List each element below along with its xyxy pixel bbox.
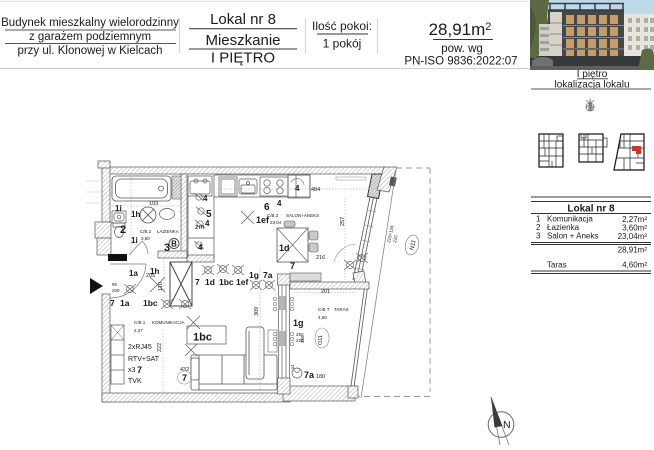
- svg-text:1i: 1i: [115, 204, 122, 213]
- svg-text:C/B.2: C/B.2: [140, 229, 152, 234]
- svg-text:3,60: 3,60: [141, 236, 150, 241]
- svg-text:7: 7: [110, 298, 115, 308]
- svg-text:200: 200: [112, 288, 120, 293]
- svg-text:255: 255: [300, 335, 305, 343]
- svg-text:SALON+ANEKS: SALON+ANEKS: [286, 213, 319, 218]
- svg-text:I piętro: I piętro: [577, 69, 608, 80]
- svg-text:2,27: 2,27: [134, 328, 143, 333]
- svg-text:180: 180: [316, 374, 325, 380]
- svg-text:7: 7: [195, 277, 200, 287]
- svg-text:z garażem podziemnym: z garażem podziemnym: [29, 31, 151, 43]
- svg-text:23,04: 23,04: [270, 220, 282, 225]
- svg-text:3: 3: [164, 242, 170, 254]
- svg-text:1h: 1h: [150, 267, 159, 276]
- svg-text:x3: x3: [128, 367, 136, 374]
- svg-text:O11: O11: [318, 335, 324, 345]
- svg-text:4,60m²: 4,60m²: [622, 261, 647, 270]
- svg-text:222: 222: [157, 343, 163, 352]
- svg-text:110: 110: [158, 282, 164, 291]
- svg-text:2: 2: [120, 224, 126, 236]
- svg-text:KOMUNIKACJA: KOMUNIKACJA: [152, 320, 185, 325]
- svg-text:Budynek mieszkalny wielorodzin: Budynek mieszkalny wielorodzinny: [1, 17, 179, 29]
- svg-text:PN-ISO 9836:2022:07: PN-ISO 9836:2022:07: [404, 56, 517, 68]
- svg-text:484: 484: [311, 187, 320, 193]
- svg-text:4: 4: [198, 243, 203, 252]
- svg-text:TVK: TVK: [128, 378, 142, 385]
- svg-text:7: 7: [137, 365, 142, 375]
- svg-text:1bc: 1bc: [143, 298, 158, 308]
- svg-text:90: 90: [112, 282, 118, 287]
- svg-text:1bc: 1bc: [219, 277, 234, 287]
- svg-text:2xRJ45: 2xRJ45: [128, 344, 152, 351]
- svg-text:ŁAZIENKA: ŁAZIENKA: [157, 229, 179, 234]
- svg-text:4: 4: [203, 194, 208, 203]
- svg-text:1d: 1d: [205, 277, 215, 287]
- svg-text:28,91m²: 28,91m²: [618, 246, 648, 255]
- svg-text:4: 4: [295, 184, 300, 193]
- svg-text:Taras: Taras: [547, 261, 567, 270]
- svg-text:TARAS: TARAS: [334, 307, 349, 312]
- svg-text:Lokal nr 8: Lokal nr 8: [210, 11, 276, 28]
- svg-text:1 pokój: 1 pokój: [323, 37, 362, 51]
- svg-text:1g: 1g: [293, 318, 304, 328]
- svg-text:216: 216: [316, 255, 325, 261]
- svg-text:7: 7: [290, 261, 295, 271]
- svg-text:1a: 1a: [120, 298, 130, 308]
- svg-text:4,60: 4,60: [318, 315, 327, 320]
- svg-text:przy ul. Klonowej w Kielcach: przy ul. Klonowej w Kielcach: [17, 45, 162, 57]
- svg-text:7: 7: [182, 373, 187, 383]
- svg-text:B: B: [171, 240, 177, 249]
- svg-text:193: 193: [149, 201, 158, 207]
- svg-text:zm: zm: [195, 224, 205, 231]
- svg-text:7a: 7a: [304, 370, 315, 380]
- svg-text:4: 4: [277, 199, 282, 208]
- svg-text:4: 4: [205, 219, 210, 228]
- svg-text:7a: 7a: [263, 270, 273, 280]
- svg-text:28,91m2: 28,91m2: [429, 20, 492, 39]
- svg-text:Ilość pokoi:: Ilość pokoi:: [312, 19, 372, 33]
- svg-text:1bc: 1bc: [193, 332, 212, 344]
- svg-text:1ef: 1ef: [236, 277, 248, 287]
- svg-text:1a: 1a: [129, 269, 138, 278]
- svg-text:C/B.1: C/B.1: [134, 320, 146, 325]
- svg-text:1d: 1d: [279, 243, 290, 253]
- svg-text:1g: 1g: [249, 270, 259, 280]
- svg-text:x1: x1: [290, 364, 295, 369]
- svg-text:RTV+SAT: RTV+SAT: [128, 356, 160, 363]
- svg-text:201: 201: [321, 289, 330, 295]
- svg-text:Lokal nr 8: Lokal nr 8: [567, 204, 615, 215]
- svg-text:23,04m²: 23,04m²: [618, 232, 648, 241]
- svg-text:Mieszkanie: Mieszkanie: [205, 32, 280, 49]
- svg-text:1i: 1i: [131, 236, 138, 245]
- svg-text:309: 309: [254, 307, 260, 316]
- svg-text:C/B.T: C/B.T: [318, 307, 330, 312]
- svg-text:3: 3: [536, 232, 541, 241]
- svg-text:6: 6: [264, 202, 270, 213]
- svg-text:C/B.3: C/B.3: [267, 213, 279, 218]
- svg-text:I PIĘTRO: I PIĘTRO: [211, 50, 275, 67]
- svg-text:Salon + Aneks: Salon + Aneks: [547, 232, 598, 241]
- svg-text:1h: 1h: [131, 210, 140, 219]
- svg-text:pow. wg: pow. wg: [441, 43, 483, 55]
- svg-text:257: 257: [340, 217, 346, 226]
- svg-text:N: N: [503, 419, 511, 431]
